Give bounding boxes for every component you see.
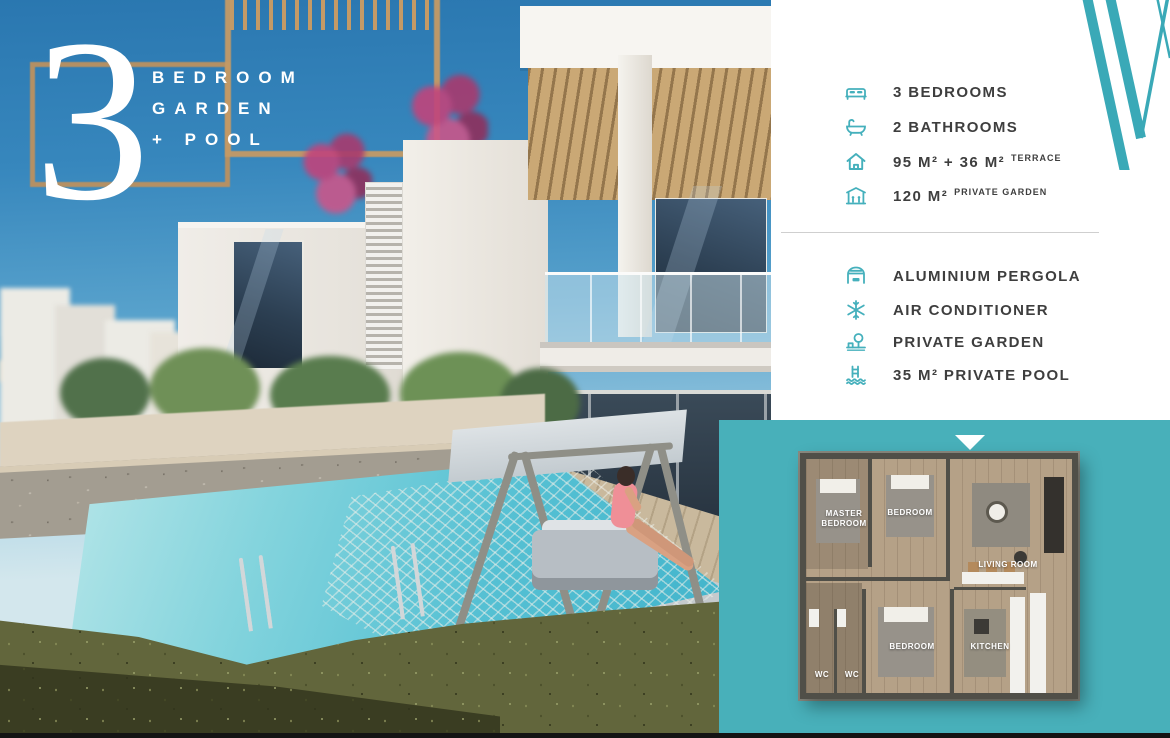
spec-suffix: TERRACE (1011, 153, 1062, 163)
feature-text: PRIVATE GARDEN (893, 334, 1045, 351)
sofa (1044, 477, 1064, 553)
house-icon (841, 150, 871, 174)
room-label: BEDROOM (887, 508, 932, 518)
private-pool-icon (841, 363, 871, 387)
floorplan-panel: MASTER BEDROOM BEDROOM LIVING ROOM BEDRO… (719, 420, 1170, 733)
dining-table (962, 572, 1024, 584)
wardrobe (1030, 593, 1046, 693)
spec-suffix: PRIVATE GARDEN (954, 187, 1047, 197)
room-label: KITCHEN (970, 642, 1009, 652)
hero-line: BEDROOM (152, 62, 304, 93)
wall (950, 589, 954, 693)
feature-row: ALUMINIUM PERGOLA (841, 263, 1081, 289)
brochure-page: 3 BEDROOM GARDEN + POOL (0, 0, 1170, 738)
spec-text: 2 BATHROOMS (893, 119, 1018, 136)
spec-panel: 3 BEDROOMS 2 BATHROOMS (771, 0, 1170, 420)
spec-row: 3 BEDROOMS (841, 79, 1014, 105)
stove (974, 619, 989, 634)
divider (781, 232, 1099, 233)
coffee-table (986, 501, 1008, 523)
wc-fixture (809, 609, 819, 627)
room-label: BEDROOM (889, 642, 934, 652)
wall (946, 459, 950, 577)
spec-row: 2 BATHROOMS (841, 114, 1024, 140)
feature-row: 35 M² PRIVATE POOL (841, 362, 1070, 388)
spec-text: 3 BEDROOMS (893, 84, 1008, 101)
feature-text: 35 M² PRIVATE POOL (893, 367, 1070, 384)
hero-number: 3 (34, 14, 150, 227)
bed-icon (841, 80, 871, 104)
aluminium-pergola-icon (841, 264, 871, 288)
arrow-down-icon (955, 435, 985, 450)
bed (886, 475, 934, 537)
air-conditioner-icon (841, 298, 871, 322)
hero-line: GARDEN (152, 93, 304, 124)
wall (834, 609, 837, 693)
balcony-glass-railing (545, 272, 771, 344)
room-label: WC (845, 670, 859, 680)
private-garden-icon (841, 330, 871, 354)
hero-title: BEDROOM GARDEN + POOL (152, 62, 304, 155)
room-label: MASTER BEDROOM (813, 509, 875, 529)
spec-row: 95 M² + 36 M² TERRACE (841, 149, 1062, 175)
feature-text: AIR CONDITIONER (893, 302, 1049, 319)
pergola-slats (230, 0, 435, 30)
hero-line: + POOL (152, 124, 304, 155)
wall (806, 577, 950, 581)
bathtub-icon (841, 115, 871, 139)
wall (954, 587, 1026, 590)
feature-row: AIR CONDITIONER (841, 297, 1049, 323)
louver-shutter (365, 182, 403, 370)
bougainvillea (300, 120, 372, 225)
room-label: WC (815, 670, 829, 680)
dining-chair (968, 562, 979, 572)
w-monogram-logo (1078, 0, 1170, 170)
spec-text: 120 M² (893, 188, 948, 205)
feature-row: PRIVATE GARDEN (841, 329, 1045, 355)
pergola-garden-icon (841, 184, 871, 208)
hero-photo: 3 BEDROOM GARDEN + POOL (0, 0, 771, 738)
kitchen-counter (1010, 597, 1025, 693)
wall (862, 589, 866, 693)
wc-fixture (836, 609, 846, 627)
floor-plan: MASTER BEDROOM BEDROOM LIVING ROOM BEDRO… (800, 453, 1078, 699)
room-label: LIVING ROOM (978, 560, 1037, 570)
spec-text: 95 M² + 36 M² (893, 154, 1005, 171)
bottom-border (0, 733, 1170, 738)
feature-text: ALUMINIUM PERGOLA (893, 268, 1081, 285)
spec-row: 120 M² PRIVATE GARDEN (841, 183, 1047, 209)
